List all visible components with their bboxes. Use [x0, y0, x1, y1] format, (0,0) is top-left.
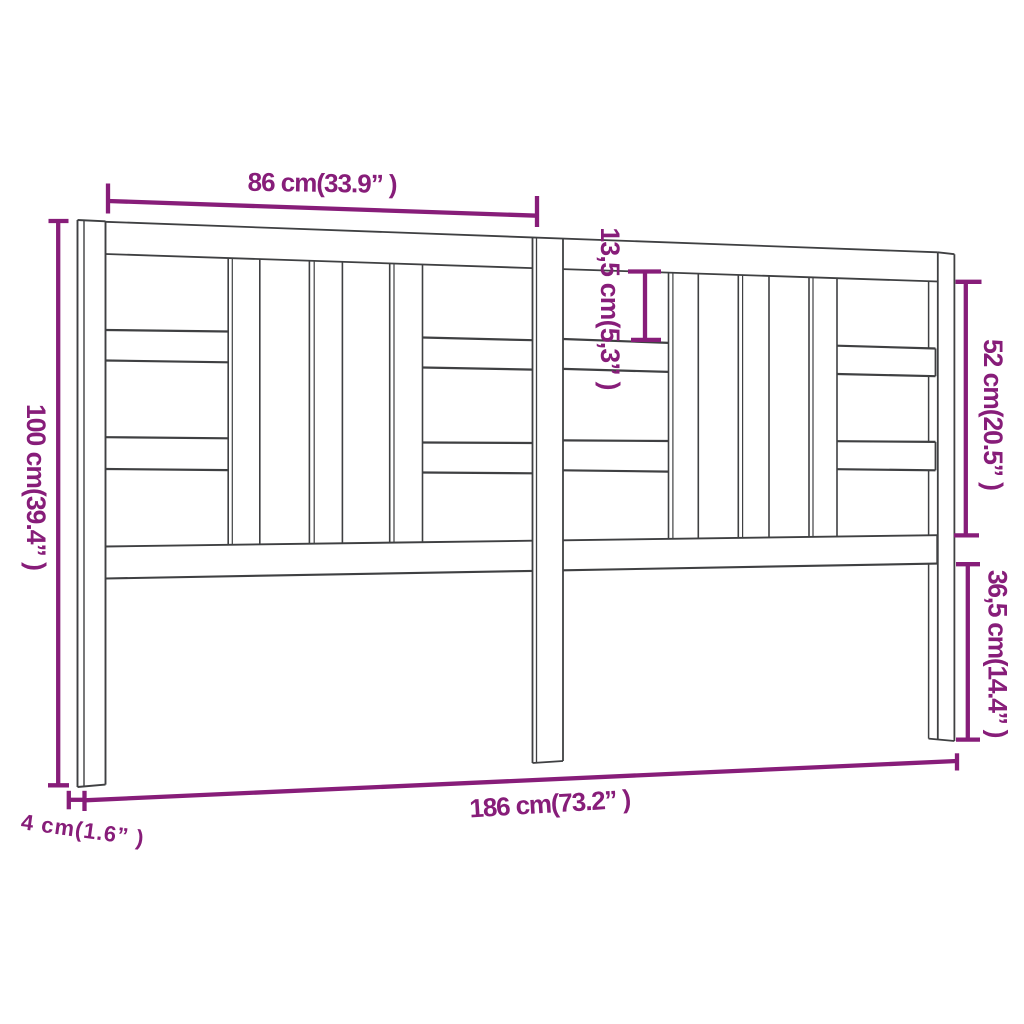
- svg-text:36,5 cm(14.4” ): 36,5 cm(14.4” ): [983, 570, 1013, 739]
- svg-text:86 cm(33.9” ): 86 cm(33.9” ): [247, 167, 397, 199]
- svg-text:100 cm(39.4” ): 100 cm(39.4” ): [21, 404, 51, 571]
- svg-text:52 cm(20.5” ): 52 cm(20.5” ): [978, 339, 1008, 491]
- svg-text:13,5 cm(5,3” ): 13,5 cm(5,3” ): [595, 227, 625, 390]
